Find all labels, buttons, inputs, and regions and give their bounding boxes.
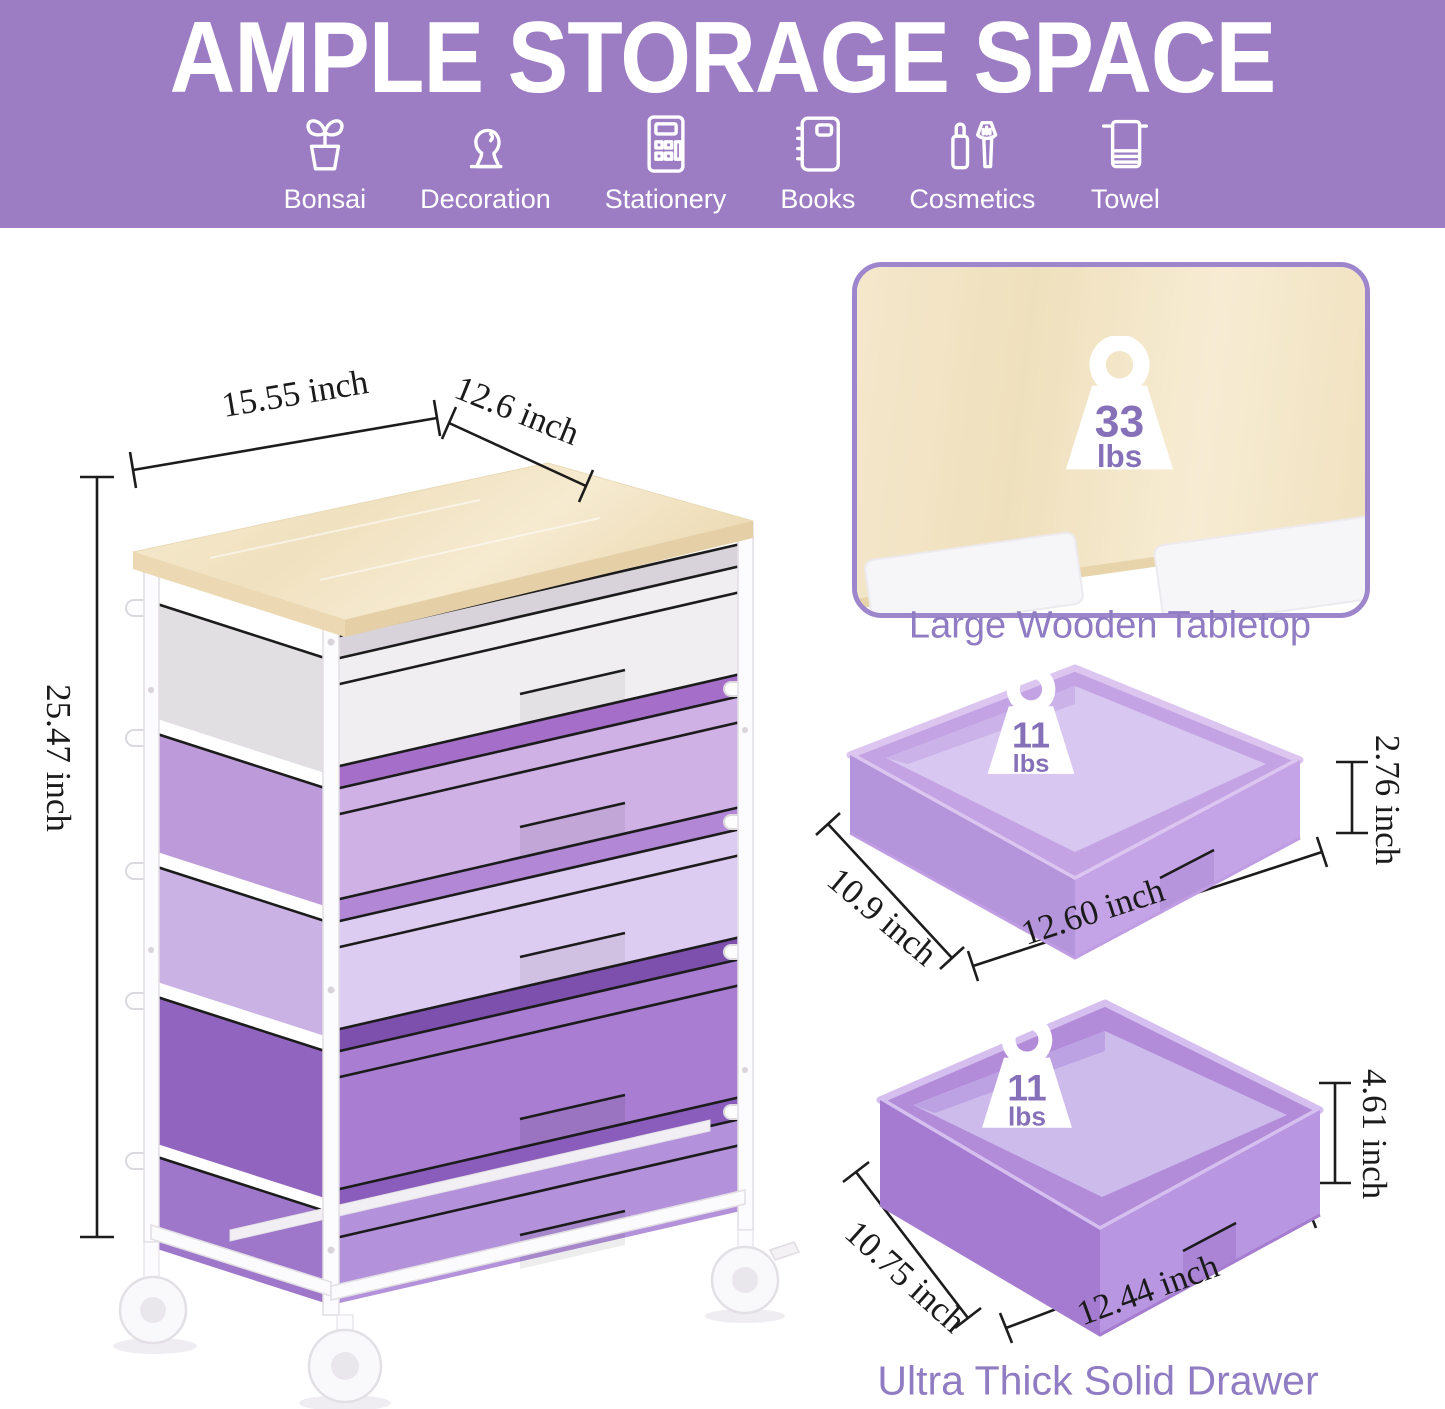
cart-depth-label: 12.6 inch bbox=[449, 368, 585, 454]
category-towel: Towel bbox=[1089, 108, 1161, 215]
category-label: Decoration bbox=[420, 184, 551, 215]
stationery-icon bbox=[630, 108, 702, 180]
cart-height-label: 25.47 inch bbox=[38, 684, 78, 832]
drawer-2-light-purple bbox=[151, 673, 745, 908]
frame-far-bar bbox=[230, 1120, 710, 1241]
books-icon bbox=[782, 108, 854, 180]
shadow bbox=[705, 1309, 785, 1323]
weight-badge-deep-drawer: 11 lbs bbox=[972, 1016, 1082, 1130]
drawer-slide-hooks bbox=[126, 600, 750, 1169]
shadow bbox=[113, 1338, 197, 1354]
capacity-unit: lbs bbox=[1013, 750, 1050, 776]
frame-posts bbox=[144, 523, 753, 1315]
category-cosmetics: Cosmetics bbox=[909, 108, 1035, 215]
product-infographic: AMPLE STORAGE SPACE Bonsai Decoration bbox=[0, 0, 1445, 1409]
cart-illustration bbox=[60, 430, 800, 1409]
category-row: Bonsai Decoration Stationery bbox=[0, 108, 1445, 215]
deep-drawer-height-label: 4.61 inch bbox=[1354, 1069, 1394, 1199]
weight-badge-tabletop: 33 lbs bbox=[1054, 336, 1185, 472]
tabletop-caption: Large Wooden Tabletop bbox=[909, 605, 1311, 648]
drawer-1-white bbox=[151, 543, 745, 775]
category-stationery: Stationery bbox=[605, 108, 727, 215]
cosmetics-icon bbox=[936, 108, 1008, 180]
bonsai-icon bbox=[289, 108, 361, 180]
category-bonsai: Bonsai bbox=[284, 108, 367, 215]
drawer-5-purple bbox=[151, 1096, 745, 1305]
category-label: Books bbox=[780, 184, 855, 215]
cart-width-label: 15.55 inch bbox=[219, 362, 371, 426]
category-label: Cosmetics bbox=[909, 184, 1035, 215]
banner-title: AMPLE STORAGE SPACE bbox=[72, 8, 1373, 109]
drawer-3-pale-lavender bbox=[151, 806, 745, 1038]
shallow-drawer-height-label: 2.76 inch bbox=[1367, 735, 1407, 865]
weight-badge-shallow-drawer: 11 lbs bbox=[978, 666, 1084, 776]
shadow bbox=[299, 1395, 391, 1409]
decoration-icon bbox=[449, 108, 521, 180]
frame-screws bbox=[148, 639, 748, 1254]
category-books: Books bbox=[780, 108, 855, 215]
capacity-unit: lbs bbox=[1097, 439, 1142, 472]
category-decoration: Decoration bbox=[420, 108, 551, 215]
drawer-4-medium-purple bbox=[151, 936, 745, 1200]
wooden-top bbox=[133, 463, 753, 637]
shallow-drawer-width-label: 12.60 inch bbox=[1017, 870, 1170, 954]
deep-drawer-depth-label: 10.75 inch bbox=[837, 1213, 974, 1342]
frame-side-bar bbox=[151, 1225, 331, 1296]
caster-wheels bbox=[120, 1230, 799, 1402]
category-label: Bonsai bbox=[284, 184, 367, 215]
shallow-drawer-depth-label: 10.9 inch bbox=[819, 860, 945, 974]
wheel-brake-lever bbox=[770, 1242, 799, 1260]
deep-drawer-width-label: 12.44 inch bbox=[1072, 1246, 1225, 1334]
frame-front-bar bbox=[331, 1190, 745, 1300]
category-label: Stationery bbox=[605, 184, 727, 215]
capacity-unit: lbs bbox=[1008, 1102, 1046, 1130]
category-label: Towel bbox=[1091, 184, 1160, 215]
towel-icon bbox=[1089, 108, 1161, 180]
header-banner: AMPLE STORAGE SPACE Bonsai Decoration bbox=[0, 0, 1445, 228]
deep-drawer-caption: Ultra Thick Solid Drawer bbox=[877, 1358, 1318, 1405]
